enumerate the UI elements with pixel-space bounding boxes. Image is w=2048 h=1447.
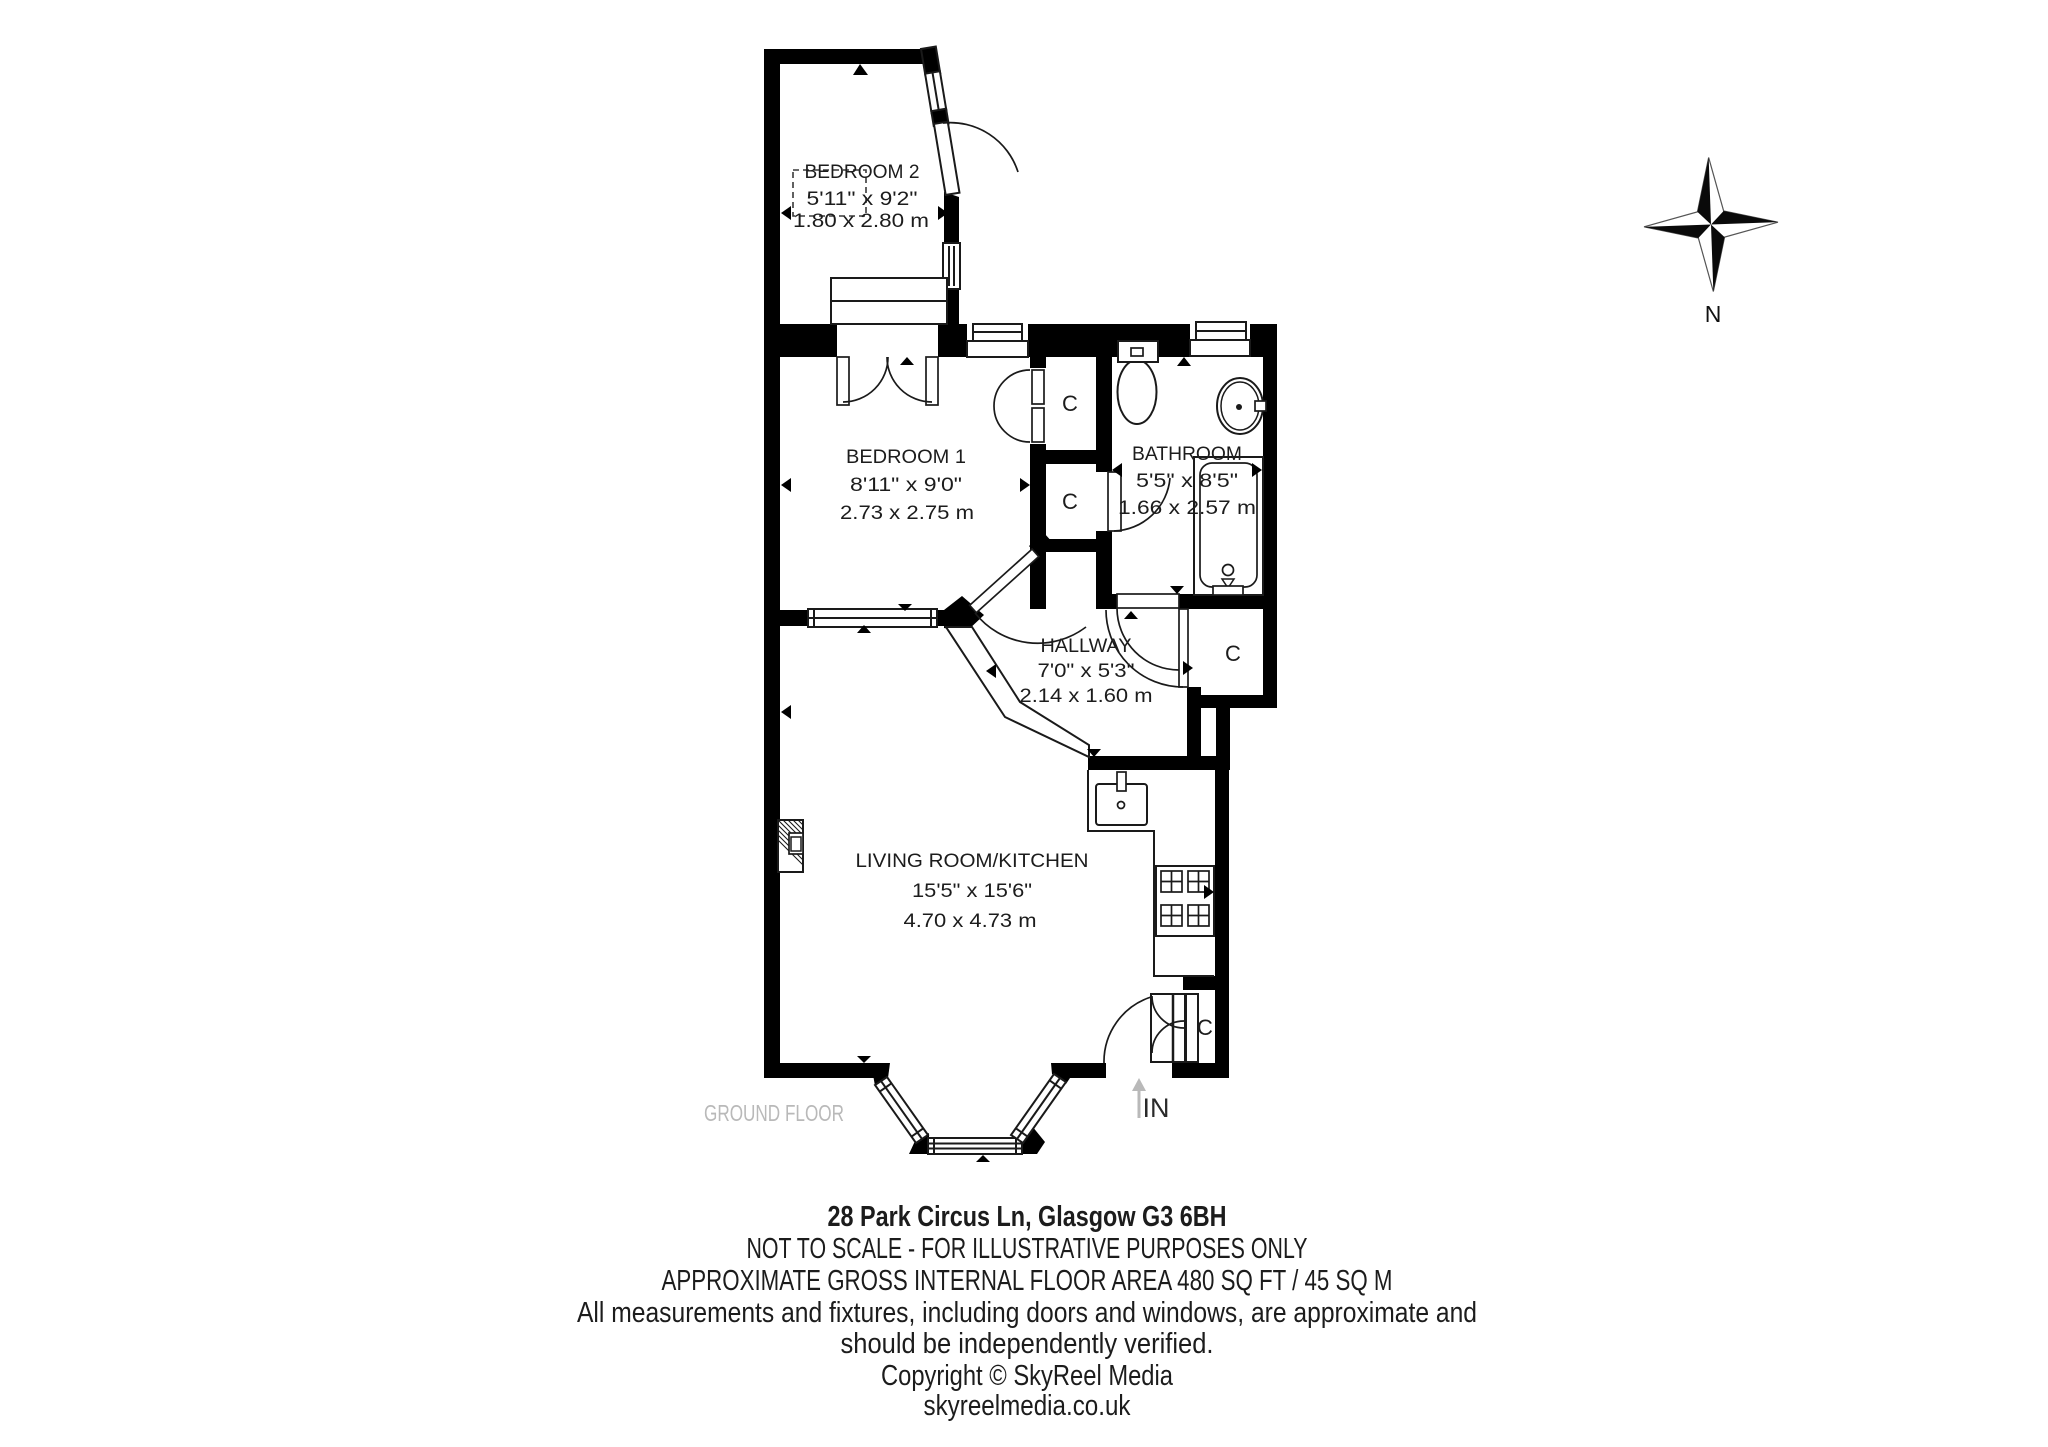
svg-text:skyreelmedia.co.uk: skyreelmedia.co.uk bbox=[924, 1390, 1131, 1422]
svg-text:7'0" x 5'3": 7'0" x 5'3" bbox=[1038, 661, 1135, 682]
svg-text:1.66 x 2.57 m: 1.66 x 2.57 m bbox=[1118, 498, 1256, 519]
svg-text:C: C bbox=[1225, 641, 1241, 666]
svg-text:All measurements and fixtures,: All measurements and fixtures, including… bbox=[577, 1297, 1477, 1329]
svg-text:IN: IN bbox=[1143, 1093, 1170, 1123]
svg-text:BEDROOM 1: BEDROOM 1 bbox=[846, 447, 966, 468]
svg-text:APPROXIMATE GROSS INTERNAL FLO: APPROXIMATE GROSS INTERNAL FLOOR AREA 48… bbox=[662, 1265, 1393, 1297]
svg-text:BEDROOM 2: BEDROOM 2 bbox=[805, 162, 920, 183]
svg-text:should be independently verifi: should be independently verified. bbox=[841, 1328, 1214, 1360]
svg-text:BATHROOM: BATHROOM bbox=[1132, 444, 1242, 465]
svg-text:NOT TO SCALE - FOR ILLUSTRATIV: NOT TO SCALE - FOR ILLUSTRATIVE PURPOSES… bbox=[747, 1233, 1308, 1265]
svg-text:5'11" x 9'2": 5'11" x 9'2" bbox=[807, 189, 918, 210]
svg-text:C: C bbox=[1197, 1015, 1213, 1040]
svg-text:C: C bbox=[1062, 391, 1078, 416]
svg-text:5'5" x 8'5": 5'5" x 8'5" bbox=[1136, 471, 1238, 492]
svg-text:2.73 x 2.75 m: 2.73 x 2.75 m bbox=[840, 503, 974, 524]
svg-text:28 Park Circus Ln, Glasgow G3: 28 Park Circus Ln, Glasgow G3 6BH bbox=[828, 1201, 1227, 1233]
svg-text:N: N bbox=[1705, 301, 1722, 327]
svg-text:8'11" x 9'0": 8'11" x 9'0" bbox=[850, 475, 962, 496]
svg-text:GROUND FLOOR: GROUND FLOOR bbox=[704, 1100, 844, 1126]
svg-text:LIVING ROOM/KITCHEN: LIVING ROOM/KITCHEN bbox=[856, 851, 1089, 872]
svg-text:15'5" x 15'6": 15'5" x 15'6" bbox=[912, 881, 1032, 902]
svg-text:1.80 x 2.80 m: 1.80 x 2.80 m bbox=[793, 211, 929, 232]
svg-text:HALLWAY: HALLWAY bbox=[1041, 636, 1132, 657]
svg-text:2.14 x 1.60 m: 2.14 x 1.60 m bbox=[1020, 686, 1153, 707]
svg-text:C: C bbox=[1062, 489, 1078, 514]
svg-text:Copyright © SkyReel Media: Copyright © SkyReel Media bbox=[881, 1360, 1174, 1392]
svg-text:4.70 x 4.73 m: 4.70 x 4.73 m bbox=[904, 911, 1037, 932]
